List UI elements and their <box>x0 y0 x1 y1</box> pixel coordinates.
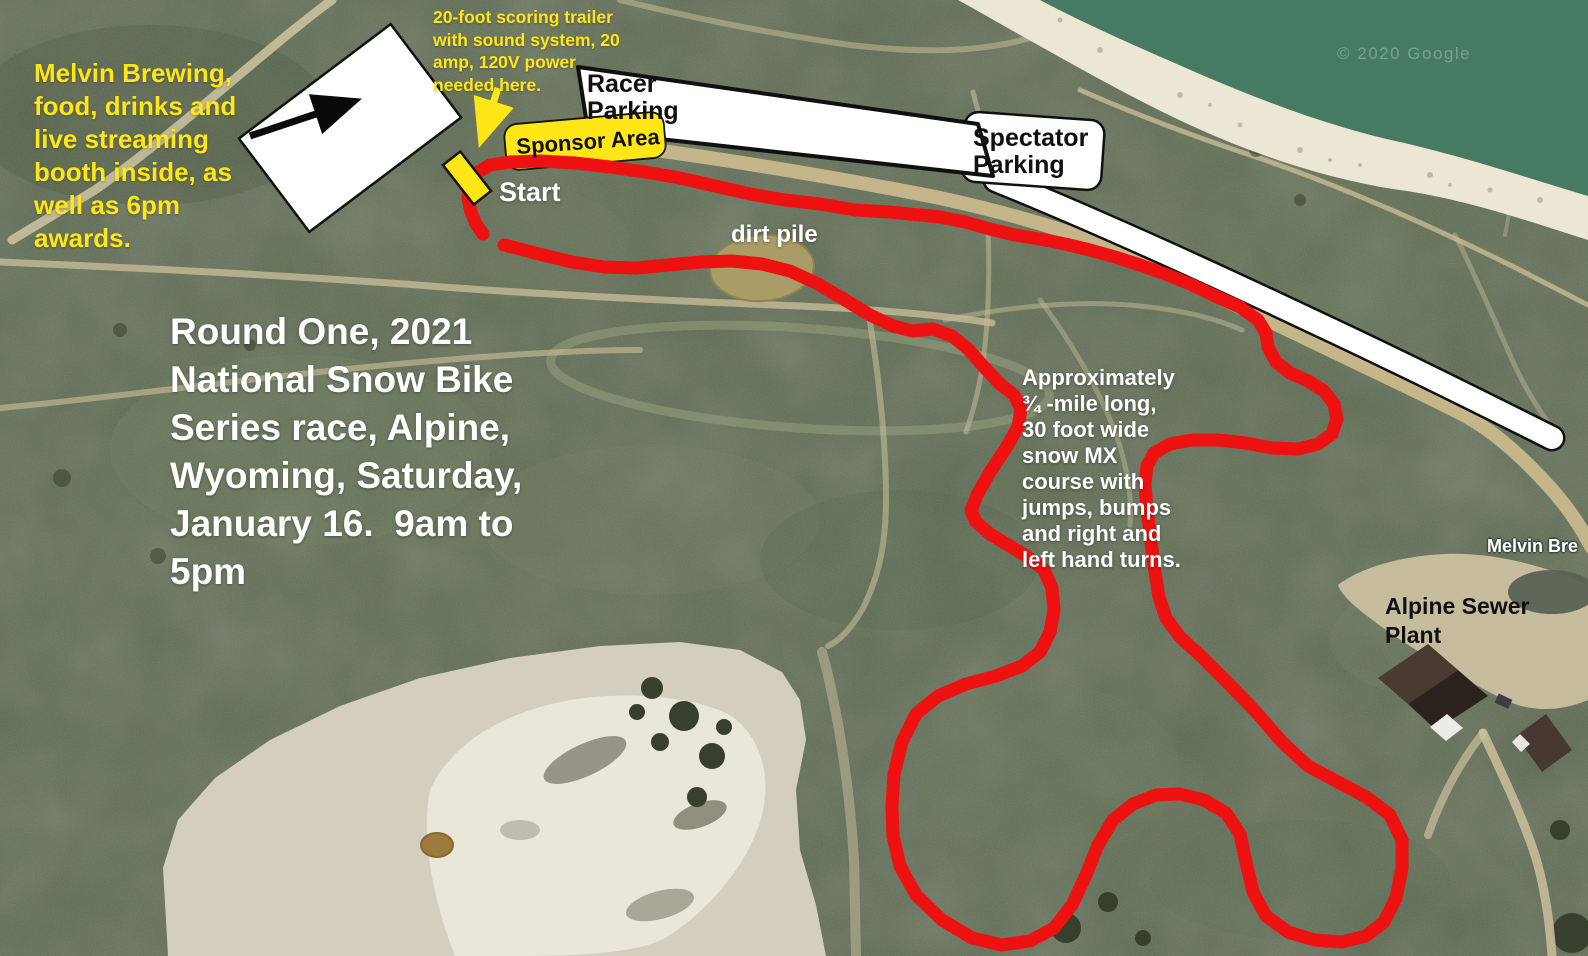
label-line: Plant <box>1385 621 1529 650</box>
note-line: 20-foot scoring trailer <box>433 6 673 29</box>
note-line: live streaming <box>34 123 284 156</box>
note-line: with sound system, 20 <box>433 29 673 52</box>
desc-line: Approximately <box>1022 365 1181 391</box>
title-line: January 16. 9am to <box>170 500 522 548</box>
annotated-satellite-map: Melvin Brewing, food, drinks and live st… <box>0 0 1588 956</box>
note-line: Melvin Brewing, <box>34 57 284 90</box>
dirt-pile-label: dirt pile <box>731 221 818 249</box>
label-line: Spectator <box>973 125 1088 152</box>
google-copyright-watermark: © 2020 Google <box>1337 44 1471 64</box>
title-line: 5pm <box>170 548 522 596</box>
title-line: Round One, 2021 <box>170 308 522 356</box>
label-line: Parking <box>973 152 1088 179</box>
note-line: awards. <box>34 222 284 255</box>
desc-line: left hand turns. <box>1022 547 1181 573</box>
title-line: National Snow Bike <box>170 356 522 404</box>
desc-line: course with <box>1022 469 1181 495</box>
pond <box>421 833 453 857</box>
course-description: Approximately ¾ -mile long, 30 foot wide… <box>1022 365 1181 573</box>
desc-line: and right and <box>1022 521 1181 547</box>
label-line: Alpine Sewer <box>1385 592 1529 621</box>
desc-line: 30 foot wide <box>1022 417 1181 443</box>
title-line: Wyoming, Saturday, <box>170 452 522 500</box>
start-label: Start <box>499 177 561 208</box>
melvin-booth-note: Melvin Brewing, food, drinks and live st… <box>34 57 284 255</box>
note-line: food, drinks and <box>34 90 284 123</box>
note-line: booth inside, as <box>34 156 284 189</box>
desc-line: ¾ -mile long, <box>1022 391 1181 417</box>
alpine-sewer-plant-label: Alpine Sewer Plant <box>1385 592 1529 650</box>
melvin-brewing-poi-label: Melvin Bre <box>1487 536 1578 557</box>
label-line: Parking <box>587 98 679 125</box>
spectator-parking-label: Spectator Parking <box>973 125 1088 179</box>
note-line: well as 6pm <box>34 189 284 222</box>
desc-line: jumps, bumps <box>1022 495 1181 521</box>
desc-line: snow MX <box>1022 443 1181 469</box>
event-title: Round One, 2021 National Snow Bike Serie… <box>170 308 522 596</box>
title-line: Series race, Alpine, <box>170 404 522 452</box>
label-line: Racer <box>587 71 679 98</box>
racer-parking-label: Racer Parking <box>587 71 679 125</box>
